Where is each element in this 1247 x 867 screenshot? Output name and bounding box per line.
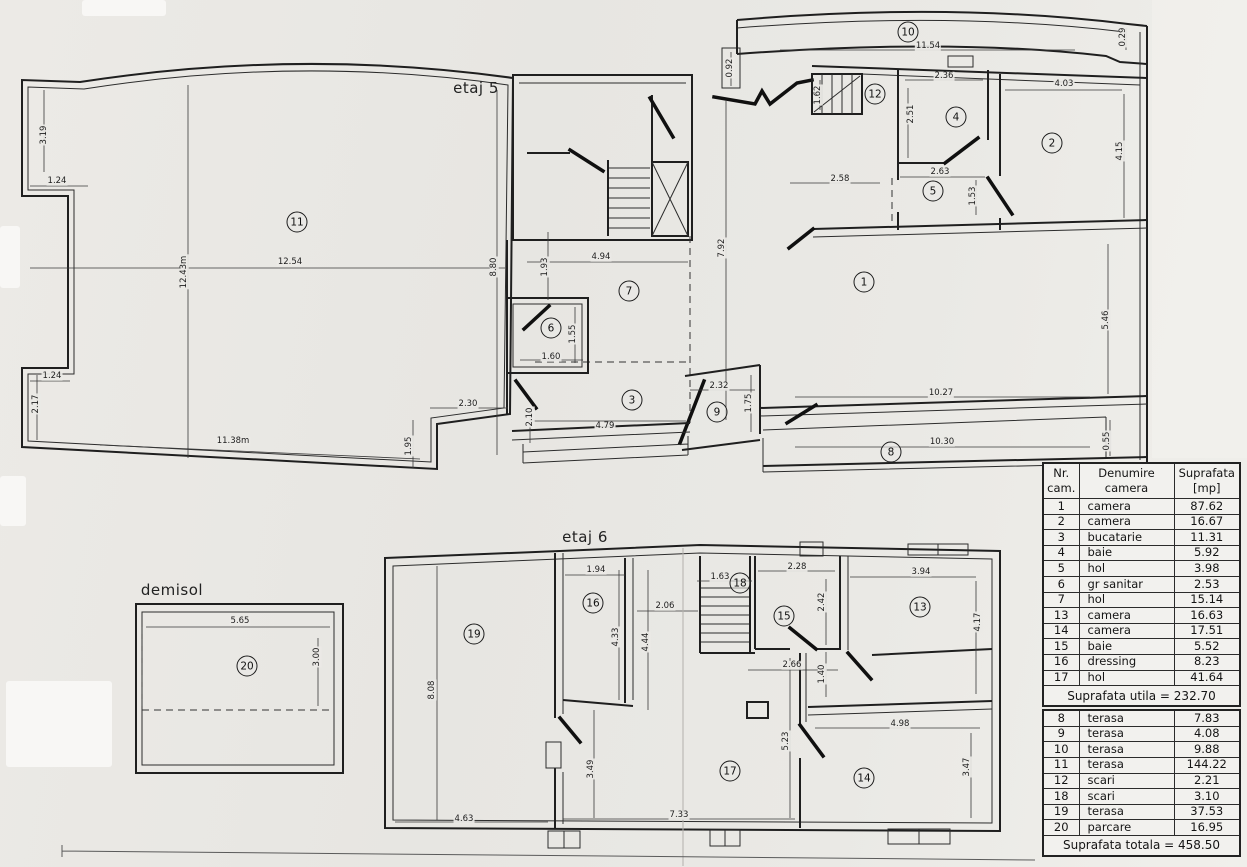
room-area-cell: 4.08 bbox=[1174, 726, 1240, 742]
scan-artifact bbox=[82, 0, 166, 16]
table-row: 12scari2.21 bbox=[1043, 773, 1240, 789]
room-area-cell: 9.88 bbox=[1174, 742, 1240, 758]
room-number-cell: 14 bbox=[1043, 623, 1079, 639]
room-area-cell: 2.21 bbox=[1174, 773, 1240, 789]
dimension-label: 3.47 bbox=[963, 757, 972, 778]
room-marker-3: 3 bbox=[622, 390, 643, 411]
room-name-cell: hol bbox=[1079, 592, 1174, 608]
room-number-cell: 13 bbox=[1043, 608, 1079, 624]
area-table-lower: 8terasa7.839terasa4.0810terasa9.8811tera… bbox=[1042, 709, 1241, 857]
dimension-label: 1.24 bbox=[42, 372, 63, 381]
room-name-cell: gr sanitar bbox=[1079, 576, 1174, 592]
table-row: 19terasa37.53 bbox=[1043, 804, 1240, 820]
room-name-cell: bucatarie bbox=[1079, 530, 1174, 546]
table-row: 8terasa7.83 bbox=[1043, 710, 1240, 726]
table-row: 11terasa144.22 bbox=[1043, 757, 1240, 773]
dimension-label: 2.51 bbox=[907, 104, 916, 125]
dimension-label: 2.66 bbox=[782, 661, 803, 670]
room-marker-16: 16 bbox=[583, 593, 604, 614]
staircase-etaj5 bbox=[608, 160, 650, 236]
room-number-cell: 12 bbox=[1043, 773, 1079, 789]
dimension-label: 7.33 bbox=[669, 811, 690, 820]
room-name-cell: camera bbox=[1079, 499, 1174, 515]
table-row: 14camera17.51 bbox=[1043, 623, 1240, 639]
table-row: 17hol41.64 bbox=[1043, 670, 1240, 686]
suprafata-utila-row: Suprafata utila = 232.70 bbox=[1043, 686, 1240, 707]
table-row: 13camera16.63 bbox=[1043, 608, 1240, 624]
dimension-label: 0.29 bbox=[1119, 27, 1128, 48]
room-name-cell: scari bbox=[1079, 789, 1174, 805]
col-header-suprafata: Suprafata [mp] bbox=[1174, 463, 1240, 499]
dimension-label: 3.19 bbox=[40, 125, 49, 146]
basement-title: demisol bbox=[141, 581, 203, 599]
dimension-label: 1.75 bbox=[745, 393, 754, 414]
scanned-floor-plan-page: etaj 5 etaj 6 demisol 3.191.2412.5412.43… bbox=[0, 0, 1247, 867]
paper-edge bbox=[1152, 0, 1247, 458]
room-number-cell: 18 bbox=[1043, 789, 1079, 805]
room-area-cell: 11.31 bbox=[1174, 530, 1240, 546]
room-name-cell: scari bbox=[1079, 773, 1174, 789]
room-area-cell: 8.23 bbox=[1174, 654, 1240, 670]
floor5-title: etaj 5 bbox=[453, 79, 499, 97]
dimension-label: 1.95 bbox=[405, 436, 414, 457]
dimension-label: 10.30 bbox=[929, 438, 955, 447]
dimension-label: 0.92 bbox=[726, 58, 735, 79]
room-number-cell: 11 bbox=[1043, 757, 1079, 773]
window-symbol bbox=[800, 542, 823, 556]
scan-artifact bbox=[6, 681, 112, 767]
scan-artifact bbox=[0, 476, 26, 526]
room-marker-4: 4 bbox=[946, 107, 967, 128]
table-row: 6gr sanitar2.53 bbox=[1043, 576, 1240, 592]
room-area-cell: 7.83 bbox=[1174, 710, 1240, 726]
dimension-label: 4.03 bbox=[1054, 80, 1075, 89]
room-marker-15: 15 bbox=[774, 606, 795, 627]
dimension-label: 2.28 bbox=[787, 563, 808, 572]
table-row: 9terasa4.08 bbox=[1043, 726, 1240, 742]
room-number-cell: 8 bbox=[1043, 710, 1079, 726]
dimension-label: 1.53 bbox=[969, 186, 978, 207]
room-number-cell: 19 bbox=[1043, 804, 1079, 820]
room-area-cell: 16.63 bbox=[1174, 608, 1240, 624]
room-name-cell: dressing bbox=[1079, 654, 1174, 670]
room-name-cell: terasa bbox=[1079, 757, 1174, 773]
room-number-cell: 6 bbox=[1043, 576, 1079, 592]
room-name-cell: baie bbox=[1079, 639, 1174, 655]
room-area-cell: 144.22 bbox=[1174, 757, 1240, 773]
table-row: 20parcare16.95 bbox=[1043, 820, 1240, 836]
room-number-cell: 15 bbox=[1043, 639, 1079, 655]
room-area-cell: 5.92 bbox=[1174, 545, 1240, 561]
room-number-cell: 3 bbox=[1043, 530, 1079, 546]
column-symbol bbox=[747, 702, 768, 718]
room-number-cell: 5 bbox=[1043, 561, 1079, 577]
room-name-cell: camera bbox=[1079, 514, 1174, 530]
room-number-cell: 1 bbox=[1043, 499, 1079, 515]
room-name-cell: terasa bbox=[1079, 804, 1174, 820]
room-area-cell: 16.67 bbox=[1174, 514, 1240, 530]
room-number-cell: 10 bbox=[1043, 742, 1079, 758]
dimension-label: 12.54 bbox=[277, 258, 303, 267]
room-marker-5: 5 bbox=[923, 181, 944, 202]
demisol-plan bbox=[136, 604, 343, 773]
room-name-cell: parcare bbox=[1079, 820, 1174, 836]
room-marker-19: 19 bbox=[464, 624, 485, 645]
dimension-label: 2.32 bbox=[709, 382, 730, 391]
dimension-label: 5.23 bbox=[782, 731, 791, 752]
dimension-label: 1.40 bbox=[818, 664, 827, 685]
room-marker-12: 12 bbox=[865, 84, 886, 105]
room-marker-11: 11 bbox=[287, 212, 308, 233]
room-area-cell: 5.52 bbox=[1174, 639, 1240, 655]
room-number-cell: 9 bbox=[1043, 726, 1079, 742]
scan-artifact bbox=[0, 226, 20, 288]
table-row: 4baie5.92 bbox=[1043, 545, 1240, 561]
room-area-cell: 37.53 bbox=[1174, 804, 1240, 820]
dimension-label: 4.94 bbox=[591, 253, 612, 262]
dimension-label: 1.55 bbox=[569, 324, 578, 345]
room-marker-8: 8 bbox=[881, 442, 902, 463]
table-row: 5hol3.98 bbox=[1043, 561, 1240, 577]
floor6-title: etaj 6 bbox=[562, 528, 608, 546]
table-row: 10terasa9.88 bbox=[1043, 742, 1240, 758]
table-row: 16dressing8.23 bbox=[1043, 654, 1240, 670]
dimension-label: 4.44 bbox=[642, 632, 651, 653]
room-marker-9: 9 bbox=[707, 402, 728, 423]
dimension-label: 3.49 bbox=[587, 759, 596, 780]
room-marker-17: 17 bbox=[720, 761, 741, 782]
dimension-label: 7.92 bbox=[718, 238, 727, 259]
room-number-cell: 4 bbox=[1043, 545, 1079, 561]
dimension-label: 4.98 bbox=[890, 720, 911, 729]
dimension-label: 2.36 bbox=[934, 72, 955, 81]
dimension-label: 11.54 bbox=[915, 42, 941, 51]
table-row: 2camera16.67 bbox=[1043, 514, 1240, 530]
room-marker-14: 14 bbox=[854, 768, 875, 789]
room-name-cell: terasa bbox=[1079, 742, 1174, 758]
dimension-label: 0.55 bbox=[1103, 431, 1112, 452]
room-name-cell: hol bbox=[1079, 561, 1174, 577]
dimension-label: 4.17 bbox=[974, 612, 983, 633]
room-marker-7: 7 bbox=[619, 281, 640, 302]
dimension-label: 10.27 bbox=[928, 389, 954, 398]
dimension-label: 1.94 bbox=[586, 566, 607, 575]
staircase-etaj6 bbox=[700, 556, 755, 653]
room-number-cell: 16 bbox=[1043, 654, 1079, 670]
dimension-label: 4.33 bbox=[612, 627, 621, 648]
room-marker-2: 2 bbox=[1042, 133, 1063, 154]
dimension-label: 4.63 bbox=[454, 815, 475, 824]
dimension-label: 1.93 bbox=[541, 257, 550, 278]
dimension-label: 5.46 bbox=[1102, 310, 1111, 331]
dimension-label: 5.65 bbox=[230, 617, 251, 626]
dimension-label: 2.06 bbox=[655, 602, 676, 611]
room-area-cell: 87.62 bbox=[1174, 499, 1240, 515]
room-marker-10: 10 bbox=[898, 22, 919, 43]
dimension-label: 2.58 bbox=[830, 175, 851, 184]
dimension-label: 4.15 bbox=[1116, 141, 1125, 162]
room-marker-13: 13 bbox=[910, 597, 931, 618]
room-number-cell: 17 bbox=[1043, 670, 1079, 686]
room-number-cell: 2 bbox=[1043, 514, 1079, 530]
room-marker-20: 20 bbox=[237, 656, 258, 677]
col-header-denumire: Denumire camera bbox=[1079, 463, 1174, 499]
area-table: Nr. cam. Denumire camera Suprafata [mp] … bbox=[1042, 462, 1242, 857]
table-row: 18scari3.10 bbox=[1043, 789, 1240, 805]
room-number-cell: 20 bbox=[1043, 820, 1079, 836]
dimension-label: 12.43m bbox=[180, 255, 189, 290]
room-area-cell: 2.53 bbox=[1174, 576, 1240, 592]
window-symbol bbox=[948, 56, 973, 67]
dimension-label: 3.00 bbox=[313, 647, 322, 668]
table-row: 7hol15.14 bbox=[1043, 592, 1240, 608]
dimension-label: 2.42 bbox=[818, 592, 827, 613]
room-name-cell: camera bbox=[1079, 623, 1174, 639]
dimension-label: 1.24 bbox=[47, 177, 68, 186]
room-area-cell: 3.98 bbox=[1174, 561, 1240, 577]
dimension-label: 11.38m bbox=[216, 437, 251, 446]
dimension-label: 4.79 bbox=[595, 422, 616, 431]
area-table-upper: Nr. cam. Denumire camera Suprafata [mp] … bbox=[1042, 462, 1241, 707]
dimension-label: 1.60 bbox=[541, 353, 562, 362]
room-name-cell: hol bbox=[1079, 670, 1174, 686]
room-name-cell: baie bbox=[1079, 545, 1174, 561]
dimension-label: 2.30 bbox=[458, 400, 479, 409]
etaj5-plan bbox=[22, 12, 1147, 472]
dimension-label: 8.08 bbox=[428, 680, 437, 701]
room-area-cell: 41.64 bbox=[1174, 670, 1240, 686]
dimension-label: 2.17 bbox=[32, 394, 41, 415]
table-row: 3bucatarie11.31 bbox=[1043, 530, 1240, 546]
room-name-cell: camera bbox=[1079, 608, 1174, 624]
room-name-cell: terasa bbox=[1079, 710, 1174, 726]
dimension-label: 1.63 bbox=[710, 573, 731, 582]
dimension-label: 1.62 bbox=[814, 85, 823, 106]
etaj6-plan bbox=[385, 542, 1000, 848]
dimension-label: 2.10 bbox=[526, 407, 535, 428]
room-area-cell: 17.51 bbox=[1174, 623, 1240, 639]
room-marker-18: 18 bbox=[730, 573, 751, 594]
dimension-label: 8.80 bbox=[490, 257, 499, 278]
room-area-cell: 16.95 bbox=[1174, 820, 1240, 836]
dimension-label: 2.63 bbox=[930, 168, 951, 177]
room-number-cell: 7 bbox=[1043, 592, 1079, 608]
room-marker-1: 1 bbox=[854, 272, 875, 293]
room-area-cell: 15.14 bbox=[1174, 592, 1240, 608]
room-area-cell: 3.10 bbox=[1174, 789, 1240, 805]
room-name-cell: terasa bbox=[1079, 726, 1174, 742]
table-row: 1camera87.62 bbox=[1043, 499, 1240, 515]
table-row: 15baie5.52 bbox=[1043, 639, 1240, 655]
dimension-label: 3.94 bbox=[911, 568, 932, 577]
suprafata-totala-row: Suprafata totala = 458.50 bbox=[1043, 835, 1240, 856]
room-marker-6: 6 bbox=[541, 318, 562, 339]
col-header-nr: Nr. cam. bbox=[1043, 463, 1079, 499]
